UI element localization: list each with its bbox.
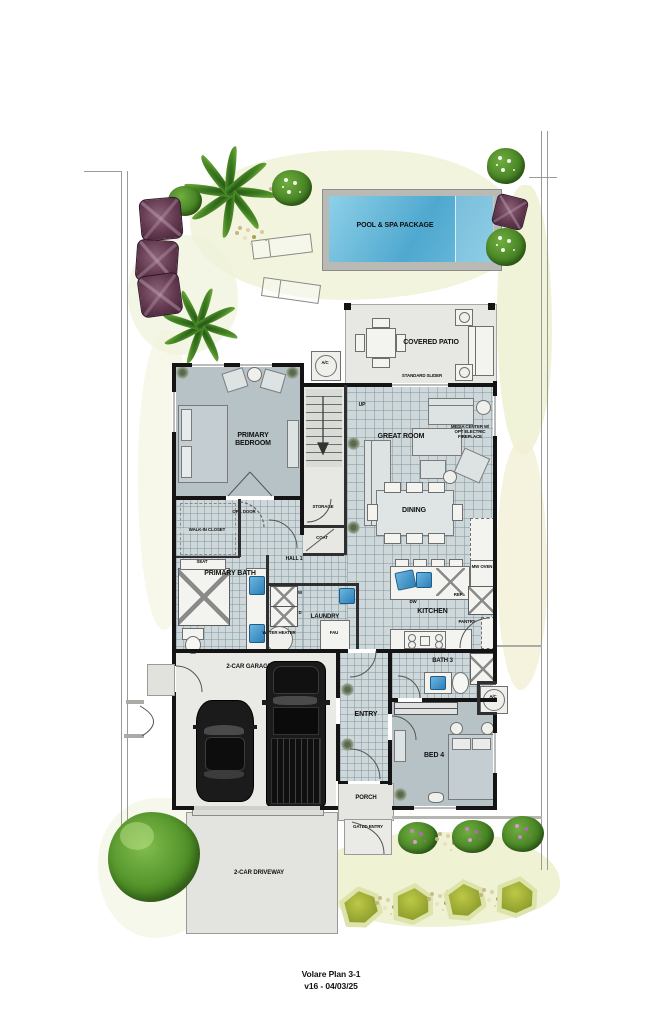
floor-plan-canvas: POOL & SPA PACKAGE COVERED PATIO STANDAR… xyxy=(0,0,663,1024)
ground-cover-speckles xyxy=(378,896,382,900)
flowering-bush xyxy=(398,822,438,854)
door-swing-overlay xyxy=(0,0,663,1024)
ground-cover-speckles xyxy=(430,892,434,896)
flowering-bush xyxy=(452,820,494,853)
flowering-bush xyxy=(502,816,544,852)
ground-cover-speckles xyxy=(482,888,486,892)
plan-version: v16 - 04/03/25 xyxy=(281,982,381,992)
ground-cover-speckles xyxy=(438,832,442,836)
plan-title: Volare Plan 3-1 xyxy=(281,970,381,980)
